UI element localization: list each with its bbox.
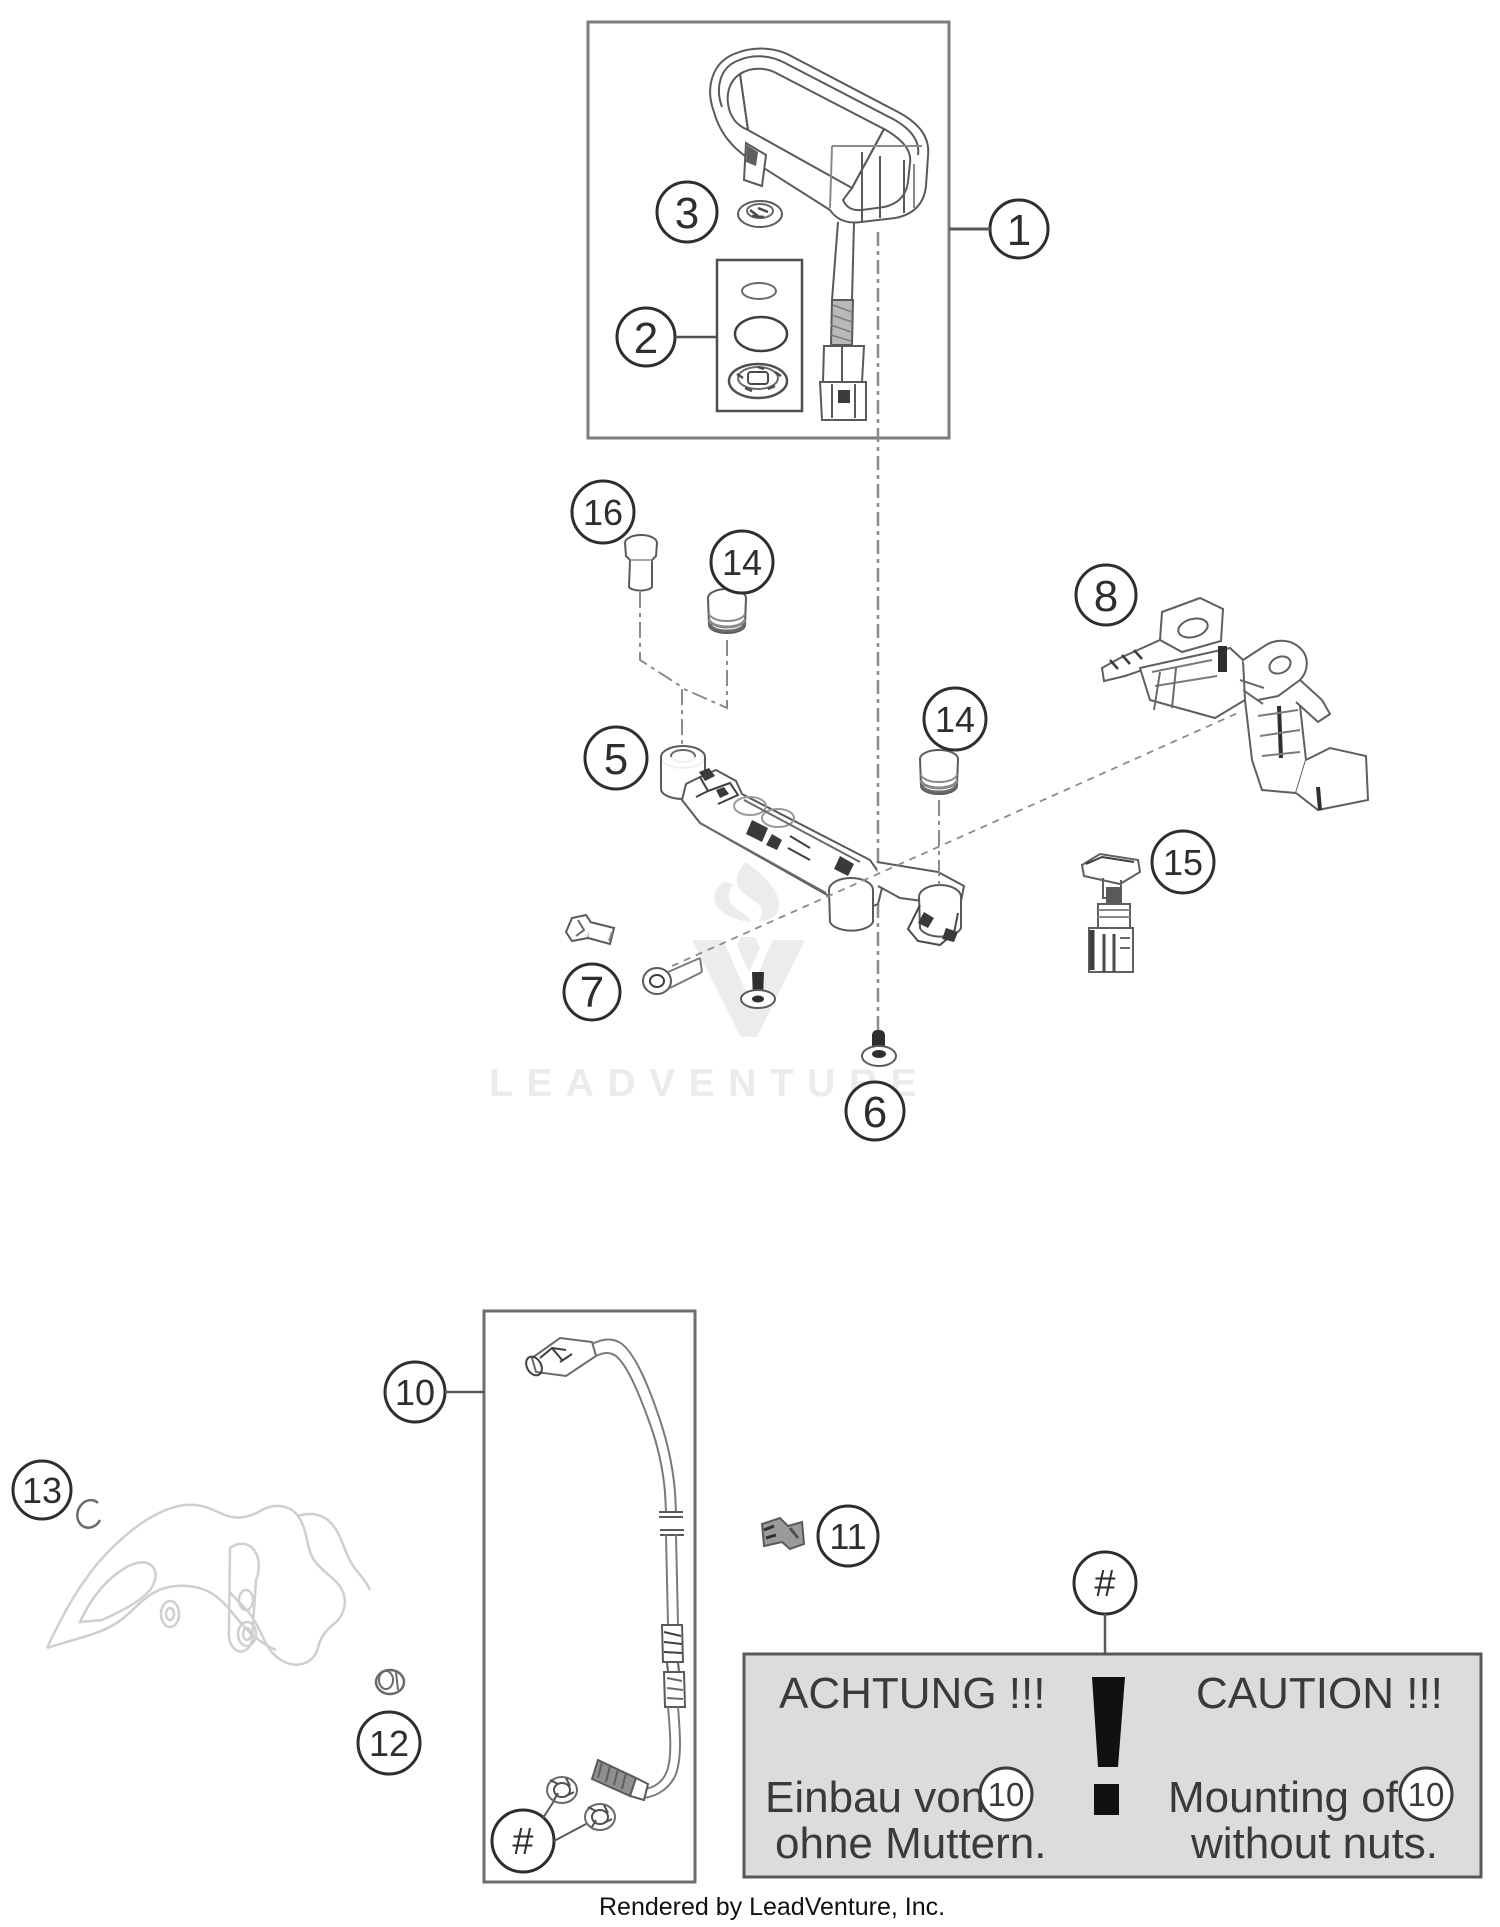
svg-text:8: 8 [1094, 572, 1118, 621]
svg-text:Mounting of: Mounting of [1168, 1773, 1399, 1822]
svg-text:without nuts.: without nuts. [1190, 1819, 1438, 1868]
svg-text:ohne Muttern.: ohne Muttern. [775, 1819, 1047, 1868]
svg-text:14: 14 [935, 699, 975, 740]
svg-text:ACHTUNG !!!: ACHTUNG !!! [779, 1669, 1045, 1718]
svg-text:13: 13 [22, 1470, 62, 1511]
svg-text:#: # [512, 1821, 533, 1863]
svg-text:10: 10 [395, 1372, 435, 1413]
svg-text:7: 7 [580, 968, 604, 1017]
svg-text:11: 11 [829, 1516, 866, 1557]
svg-text:16: 16 [583, 492, 623, 533]
svg-text:10: 10 [988, 1776, 1025, 1813]
svg-text:CAUTION !!!: CAUTION !!! [1196, 1669, 1443, 1718]
svg-text:15: 15 [1163, 842, 1203, 883]
svg-text:3: 3 [675, 189, 699, 238]
svg-text:1: 1 [1007, 206, 1031, 255]
svg-text:12: 12 [369, 1723, 409, 1764]
svg-text:6: 6 [863, 1088, 887, 1137]
svg-text:5: 5 [604, 735, 628, 784]
svg-text:Einbau von: Einbau von [765, 1773, 985, 1822]
svg-text:2: 2 [634, 314, 658, 363]
svg-text:Rendered by LeadVenture, Inc.: Rendered by LeadVenture, Inc. [599, 1893, 945, 1921]
svg-text:#: # [1094, 1563, 1115, 1605]
svg-text:10: 10 [1408, 1776, 1445, 1813]
svg-text:14: 14 [722, 542, 762, 583]
